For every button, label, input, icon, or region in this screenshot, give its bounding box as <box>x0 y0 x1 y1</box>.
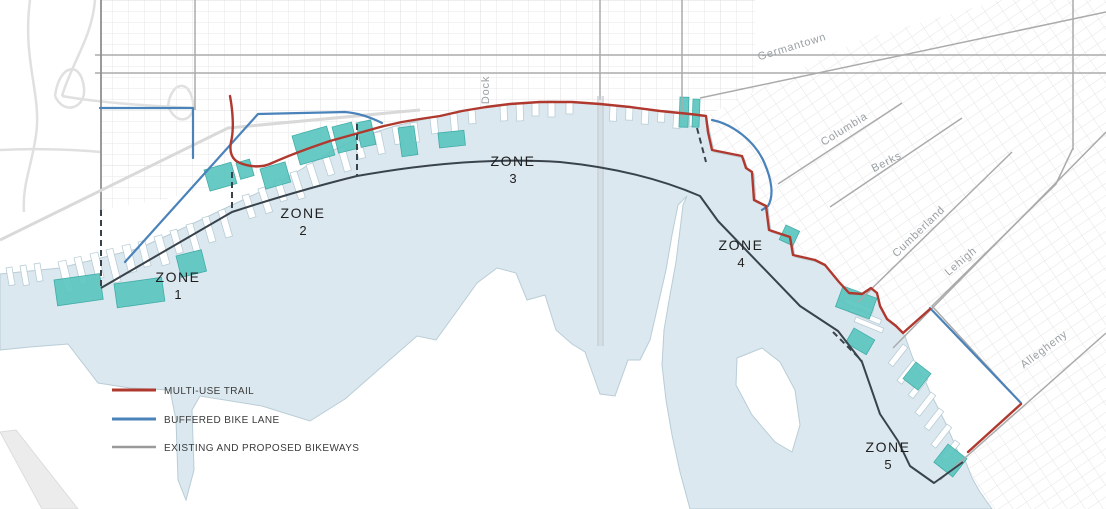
pier <box>566 102 573 114</box>
pier <box>641 109 649 124</box>
pier <box>548 101 555 117</box>
pier <box>657 111 665 122</box>
pier <box>532 102 539 116</box>
legend-label-buffered-bike-lane: BUFFERED BIKE LANE <box>164 415 280 426</box>
highlighted-pier <box>692 99 700 127</box>
zone-5-label: ZONE <box>866 439 911 455</box>
zone-3-label: ZONE <box>491 153 536 169</box>
zone-3-number: 3 <box>509 171 516 186</box>
zone-1-number: 1 <box>174 287 181 302</box>
legend-label-existing-bikeways: EXISTING AND PROPOSED BIKEWAYS <box>164 443 359 454</box>
highlighted-pier <box>438 130 465 148</box>
pier <box>430 117 439 134</box>
zone-5-number: 5 <box>884 457 891 472</box>
pier <box>516 103 524 121</box>
zone-2-number: 2 <box>299 223 306 238</box>
zone-4-number: 4 <box>737 255 744 270</box>
legend-label-multi-use-trail: MULTI-USE TRAIL <box>164 386 254 397</box>
pier <box>500 105 508 121</box>
street-label-dock: Dock <box>480 76 492 104</box>
pier <box>626 107 633 120</box>
highlighted-pier <box>398 126 418 157</box>
map-canvas: ZONE 1 ZONE 2 ZONE 3 ZONE 4 ZONE 5 Dock … <box>0 0 1106 509</box>
pier <box>450 113 459 132</box>
river-bridge <box>597 96 604 346</box>
zone-1-label: ZONE <box>156 269 201 285</box>
pier <box>609 105 617 121</box>
zone-4-label: ZONE <box>719 237 764 253</box>
pier <box>468 110 476 124</box>
zone-2-label: ZONE <box>281 205 326 221</box>
waterfront-zone-map: ZONE 1 ZONE 2 ZONE 3 ZONE 4 ZONE 5 Dock … <box>0 0 1106 509</box>
